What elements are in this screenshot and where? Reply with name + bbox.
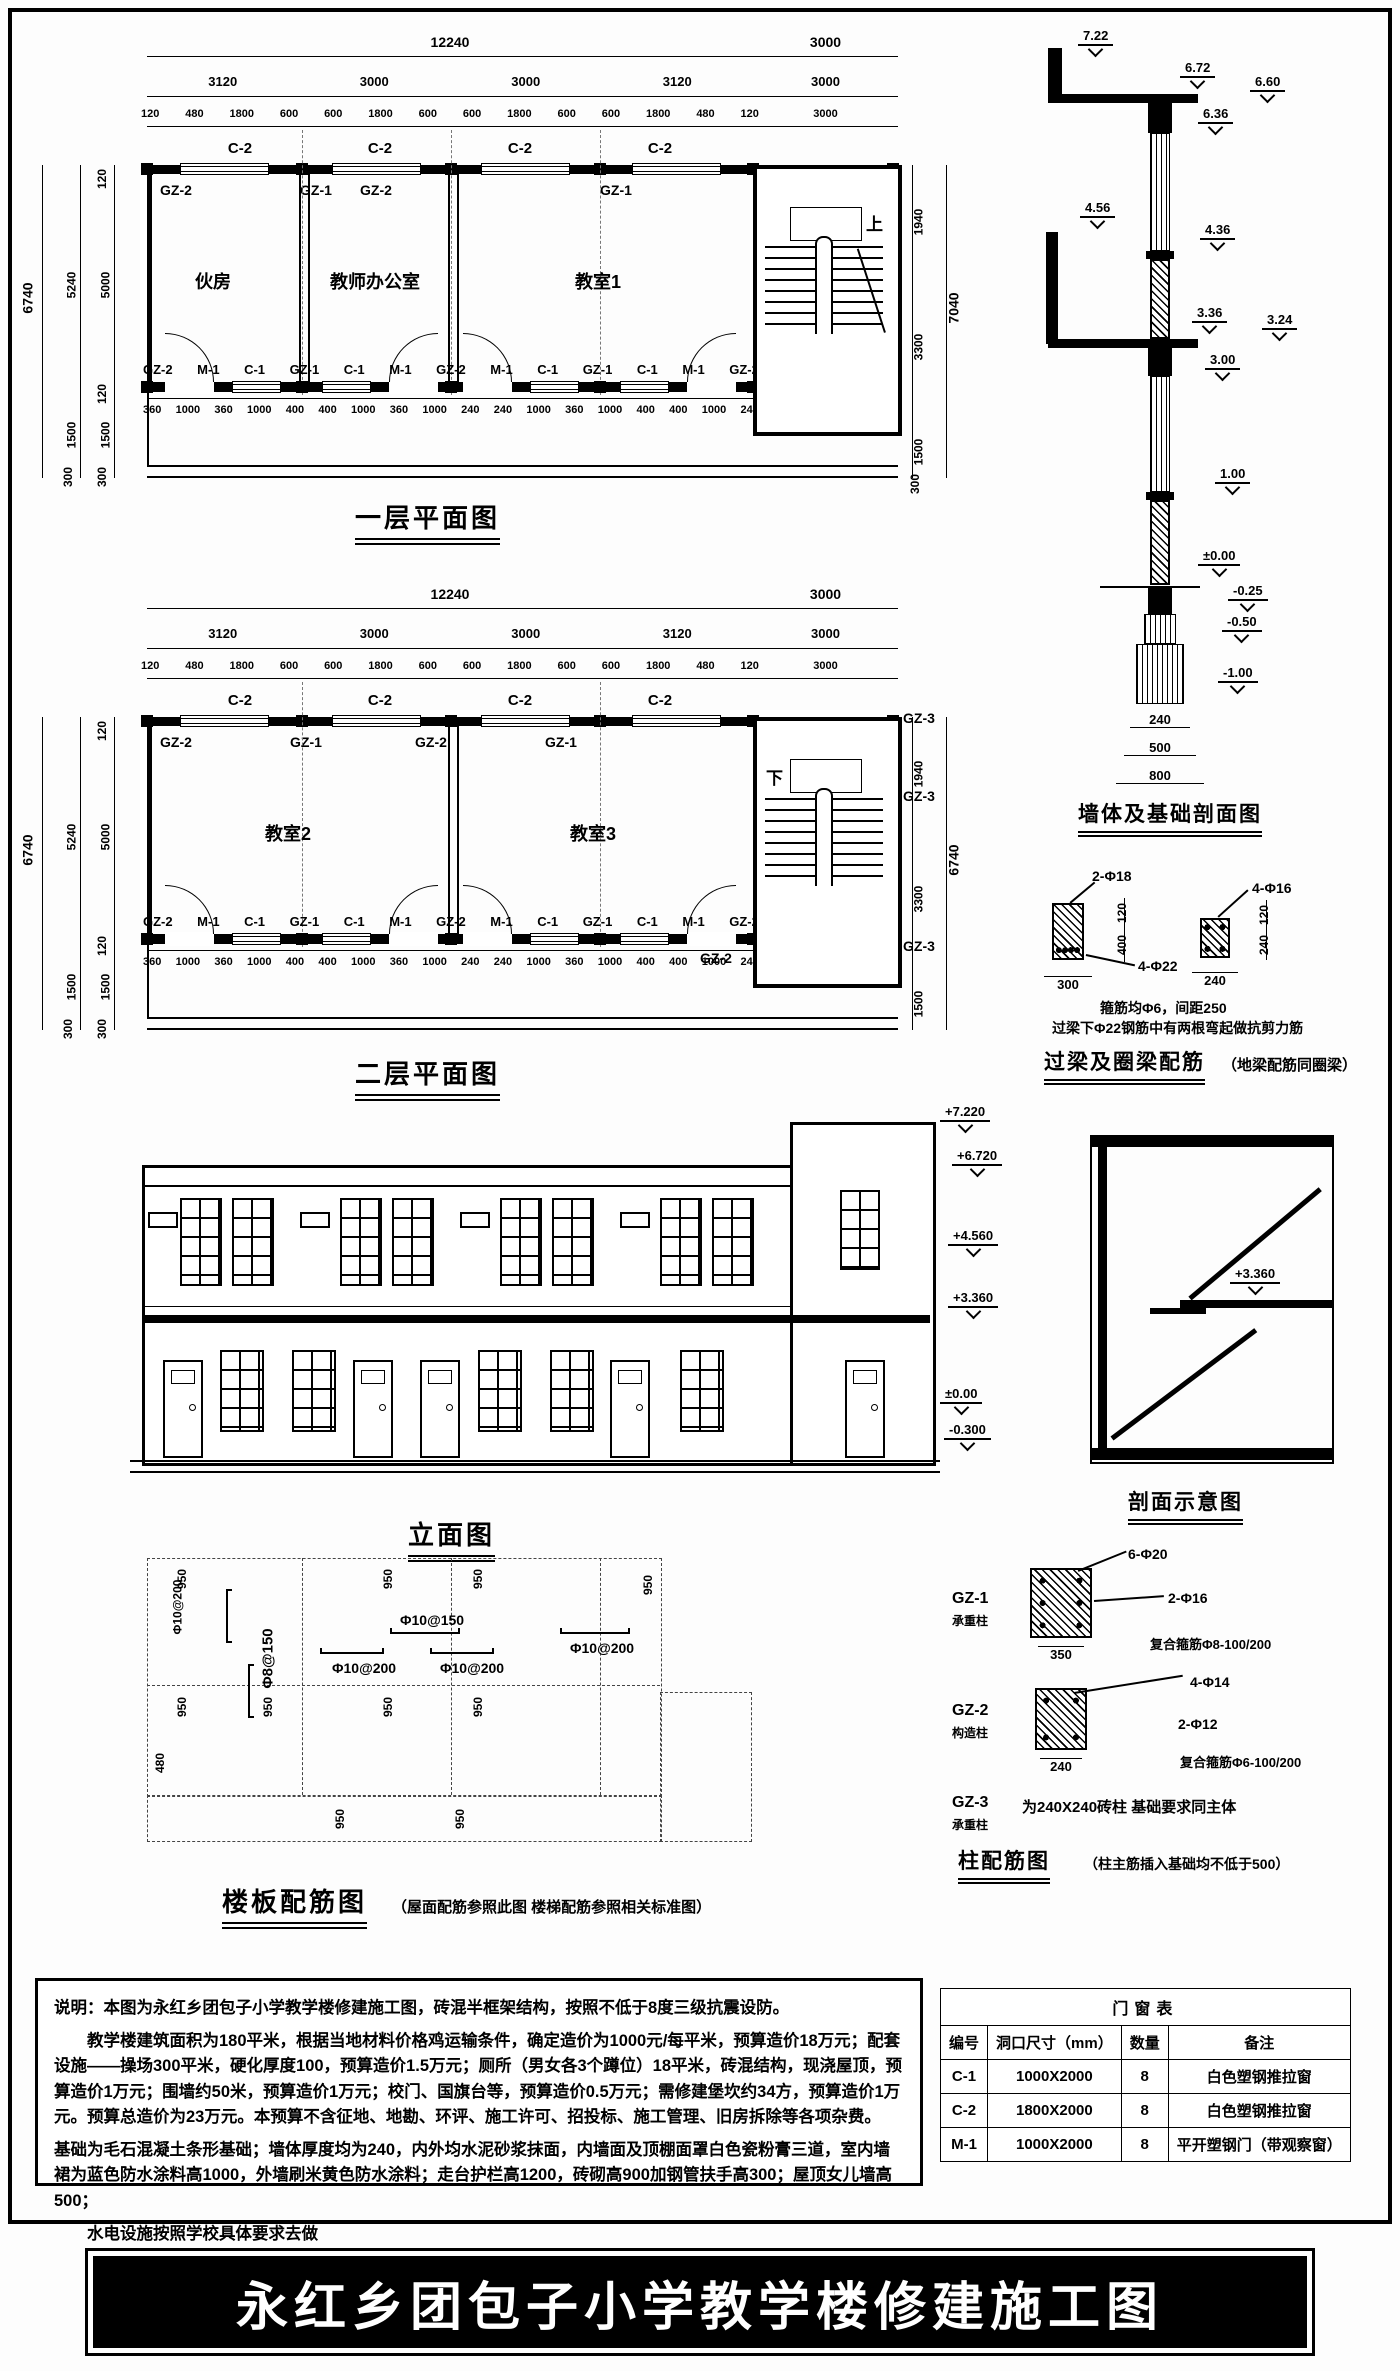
notes-paragraph: 基础为毛石混凝土条形基础；墙体厚度均为240，内外均水泥砂浆抹面，内墙面及顶棚面…: [54, 2138, 904, 2215]
cell-size: 1000X2000: [988, 2060, 1122, 2094]
cell-code: C-1: [941, 2060, 988, 2094]
table-row: C-1 1000X2000 8 白色塑钢推拉窗: [941, 2060, 1351, 2094]
cell-code: C-2: [941, 2094, 988, 2128]
cell-remark: 白色塑钢推拉窗: [1168, 2060, 1350, 2094]
notes-panel: 说明：本图为永红乡团包子小学教学楼修建施工图，砖混半框架结构，按照不低于8度三级…: [35, 1978, 923, 2186]
rebar-label: 2-Φ12: [1178, 1716, 1218, 1732]
rebar-label: 2-Φ16: [1168, 1590, 1208, 1606]
drawing-subtitle: （柱主筋插入基础均不低于500）: [1084, 1854, 1289, 1874]
column-note: 为240X240砖柱 基础要求同主体: [1022, 1796, 1236, 1817]
drawing-title: 柱配筋图: [958, 1845, 1050, 1884]
table-header-cell: 备注: [1168, 2026, 1350, 2060]
column-type: 构造柱: [952, 1724, 988, 1741]
cell-remark: 白色塑钢推拉窗: [1168, 2094, 1350, 2128]
cell-qty: 8: [1121, 2060, 1168, 2094]
column-name: GZ-1: [952, 1590, 988, 1608]
table-header-row: 编号洞口尺寸（mm）数量备注: [941, 2026, 1351, 2060]
rebar-label: 复合箍筋Φ8-100/200: [1150, 1634, 1271, 1653]
notes-line: 水电设施按照学校具体要求去做: [54, 2222, 904, 2248]
table-header-cell: 洞口尺寸（mm）: [988, 2026, 1122, 2060]
notes-line: 说明：本图为永红乡团包子小学教学楼修建施工图，砖混半框架结构，按照不低于8度三级…: [54, 1996, 904, 2022]
notes-paragraph: 教学楼建筑面积为180平米，根据当地材料价格鸡运输条件，确定造价为1000元/每…: [54, 2029, 904, 2131]
column-name: GZ-3: [952, 1794, 988, 1812]
leader-line: [1074, 1675, 1183, 1694]
column-type: 承重柱: [952, 1816, 988, 1833]
cell-qty: 8: [1121, 2128, 1168, 2162]
table-row: M-1 1000X2000 8 平开塑钢门（带观察窗）: [941, 2128, 1351, 2162]
cell-qty: 8: [1121, 2094, 1168, 2128]
column-name: GZ-2: [952, 1702, 988, 1720]
leader-line: [1094, 1595, 1164, 1601]
rebar-label: 4-Φ14: [1190, 1674, 1230, 1690]
sheet-title-bar: 永红乡团包子小学教学楼修建施工图: [85, 2248, 1315, 2356]
table-header-cell: 编号: [941, 2026, 988, 2060]
construction-drawing-sheet: 12240 3000 3120300030003120 3000 1204801…: [0, 0, 1400, 2371]
cell-code: M-1: [941, 2128, 988, 2162]
table-row: C-2 1800X2000 8 白色塑钢推拉窗: [941, 2094, 1351, 2128]
dim-label: 240: [1040, 1758, 1082, 1774]
column-type: 承重柱: [952, 1612, 988, 1629]
dim-label: 350: [1038, 1646, 1084, 1662]
cell-size: 1800X2000: [988, 2094, 1122, 2128]
sheet-title: 永红乡团包子小学教学楼修建施工图: [93, 2256, 1307, 2348]
column-section: [1035, 1688, 1087, 1750]
rebar-label: 复合箍筋Φ6-100/200: [1180, 1752, 1301, 1771]
table-body: C-1 1000X2000 8 白色塑钢推拉窗 C-2 1800X2000 8 …: [941, 2060, 1351, 2162]
door-window-table: 门窗表 编号洞口尺寸（mm）数量备注 C-1 1000X2000 8 白色塑钢推…: [940, 1988, 1351, 2162]
table-header-cell: 数量: [1121, 2026, 1168, 2060]
cell-remark: 平开塑钢门（带观察窗）: [1168, 2128, 1350, 2162]
column-reinforcement-detail: GZ-1 承重柱 6-Φ20 2-Φ16 复合箍筋Φ8-100/200 350 …: [0, 0, 1400, 1960]
cell-size: 1000X2000: [988, 2128, 1122, 2162]
leader-line: [1078, 1551, 1127, 1572]
table-title: 门窗表: [941, 1989, 1351, 2026]
column-section: [1030, 1568, 1092, 1638]
rebar-label: 6-Φ20: [1128, 1546, 1168, 1562]
